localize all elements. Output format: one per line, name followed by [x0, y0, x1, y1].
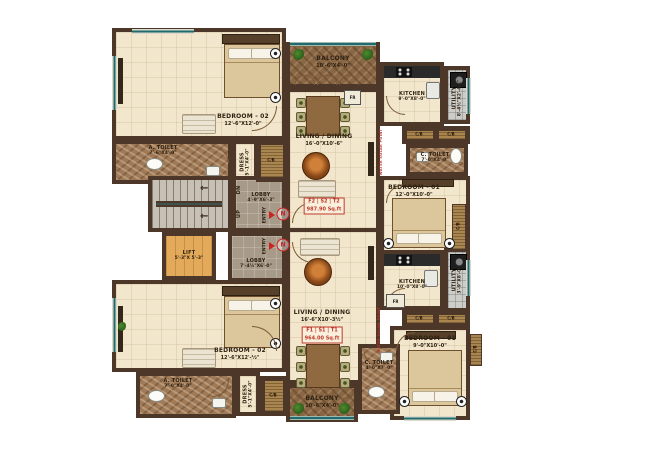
entry-arrow-icon: [269, 242, 275, 250]
note-water-point-upper: WATER SOLAR POINT: [379, 129, 383, 175]
label-living-lower: LIVING / DINING 16'-6"X10'-3½": [294, 309, 351, 323]
pillow: [228, 300, 253, 311]
label-c-toilet-upper: C. TOILET 7'-0"X4'-0": [421, 152, 450, 164]
side-table-icon: [270, 48, 281, 59]
stove-upper: [396, 67, 412, 77]
north-marker: N: [277, 239, 290, 252]
label-balcony-upper: BALCONY 10'-6"X4'-0": [316, 55, 350, 69]
sofa-upper-living: [298, 180, 336, 198]
label-cb: C/B: [415, 316, 422, 321]
wc-lower-c-toilet: [368, 386, 385, 398]
pillow: [412, 391, 436, 402]
balcony-door-arch: [317, 75, 337, 85]
bed-fold-line: [225, 62, 279, 63]
label-dress-upper: DRESS 5'-1"X4'-0": [239, 148, 250, 175]
label-cb: C/B: [267, 158, 274, 163]
chair: [296, 362, 306, 372]
label-entry-upper: ENTRY: [263, 207, 268, 223]
label-dress-lower: DRESS 5'-1"X4'-0": [242, 380, 253, 407]
chair: [296, 112, 306, 122]
window: [466, 260, 471, 296]
side-table-icon: [444, 238, 455, 249]
label-cb: C/B: [415, 132, 422, 137]
wc-upper-c-toilet: [450, 148, 462, 164]
note-water-point-lower: WATER SOLAR POINT: [377, 307, 381, 353]
tv-unit-upper-bedroom2: [118, 58, 123, 104]
balcony-railing-lower: [290, 416, 354, 420]
stair-arrow-up-icon: ←: [200, 212, 208, 222]
side-table-icon: [456, 396, 467, 407]
label-cb: C/B: [456, 222, 461, 229]
dining-table-upper: [306, 96, 340, 136]
label-entry-lower: ENTRY: [263, 238, 268, 254]
floor-plan: FR ← ← FR: [0, 0, 650, 450]
wc-lower-a-toilet: [148, 390, 165, 402]
label-utility-lower: UTILITY 3'-9"X8'-0": [451, 266, 462, 293]
label-lobby-upper: LOBBY 4'-9"X6'-3": [247, 192, 274, 204]
label-kitchen-lower: KITCHEN 10'-0"X8'-0": [397, 279, 427, 291]
side-table-icon: [383, 238, 394, 249]
label-cb: C/B: [447, 132, 454, 137]
chair: [296, 378, 306, 388]
side-table-icon: [399, 396, 410, 407]
basin-lower-a-toilet: [212, 398, 226, 408]
label-kitchen-upper: KITCHEN 9'-0"X8'-0": [398, 91, 425, 103]
side-table-icon: [270, 92, 281, 103]
balcony-door-arch: [295, 75, 315, 85]
chair: [340, 112, 350, 122]
bed-upper-bedroom1: [392, 198, 446, 248]
chair: [296, 98, 306, 108]
tv-unit-upper-living: [368, 142, 374, 176]
label-lobby-lower: LOBBY 7'-4½"X6'-0": [240, 258, 272, 270]
bed-lower-bedroom1: [408, 350, 462, 406]
side-table-icon: [270, 298, 281, 309]
round-rug-upper: [302, 152, 330, 180]
pillow: [396, 233, 420, 244]
sofa-upper-bedroom2: [182, 114, 216, 134]
sink-upper: [426, 82, 440, 99]
label-a-toilet-lower: A. TOILET 7'-0"X4'-0": [164, 378, 193, 390]
label-cb: C/B: [269, 393, 276, 398]
kitchen-counter-upper: [384, 66, 440, 78]
stove-lower: [396, 255, 412, 265]
chair: [340, 346, 350, 356]
window: [112, 298, 117, 352]
window: [112, 56, 117, 110]
window: [132, 29, 194, 34]
north-marker: N: [277, 208, 290, 221]
label-stairs-up: UP: [236, 210, 242, 218]
wc-upper-a-toilet: [146, 158, 163, 170]
wardrobe-lower-bedroom2: [222, 286, 280, 296]
pillow: [418, 233, 442, 244]
label-balcony-lower: BALCONY 10'-6"X4'-0": [305, 395, 339, 409]
label-bedroom2-upper: BEDROOM - 02 12'-6"X12'-0": [217, 113, 269, 127]
label-living-upper: LIVING / DINING 16'-0"X10'-6": [296, 133, 353, 147]
pillow: [228, 48, 253, 59]
label-bedroom2-lower: BEDROOM - 02 12'-6"X12'-½": [214, 347, 266, 361]
label-bedroom1-upper: BEDROOM - 01 12'-0"X10'-0": [388, 184, 440, 198]
label-stairs-dn: DN: [236, 186, 242, 195]
dining-table-lower: [306, 344, 340, 388]
balcony-door-arch: [339, 75, 359, 85]
area-badge-lower: F1 | S1 | T1 964.00 Sq.ft: [302, 327, 343, 344]
fridge-lower: FR: [386, 294, 405, 308]
pillow: [434, 391, 458, 402]
label-cb: C/B: [473, 345, 478, 352]
label-a-toilet-upper: A. TOILET 7'-6"X4'-0": [149, 145, 178, 157]
basin-upper-a-toilet: [206, 166, 220, 176]
label-utility-upper: UTILITY 8'-4½"X2'-4½": [451, 80, 462, 117]
fridge-upper: FR: [344, 90, 361, 105]
bed-fold-line: [409, 388, 461, 389]
area-badge-upper: F2 | S2 | T2 987.90 Sq.ft: [304, 198, 345, 215]
kitchen-counter-lower: [384, 254, 440, 266]
label-c-toilet-lower: C. TOILET 4'-0"X7'-0": [365, 360, 394, 372]
chair: [340, 362, 350, 372]
stair-handrail: [156, 201, 222, 207]
label-cb: C/B: [447, 316, 454, 321]
chair: [296, 346, 306, 356]
room-lobby-upper: [236, 180, 282, 228]
tv-unit-lower-living: [368, 246, 374, 280]
chair: [340, 378, 350, 388]
bed-fold-line: [225, 314, 279, 315]
stair-arrow-dn-icon: ←: [200, 184, 208, 194]
window: [466, 78, 471, 114]
entry-arrow-icon: [269, 211, 275, 219]
window: [404, 416, 456, 421]
sofa-lower-bedroom2: [182, 348, 216, 368]
label-lift: LIFT 5'-3"X 5'-3": [175, 250, 204, 262]
balcony-railing-upper: [290, 42, 376, 46]
bed-fold-line: [393, 230, 445, 231]
wardrobe-upper-bedroom2: [222, 34, 280, 44]
label-bedroom1-lower: BEDROOM - 01 9'-0"X10'-0": [404, 335, 456, 349]
